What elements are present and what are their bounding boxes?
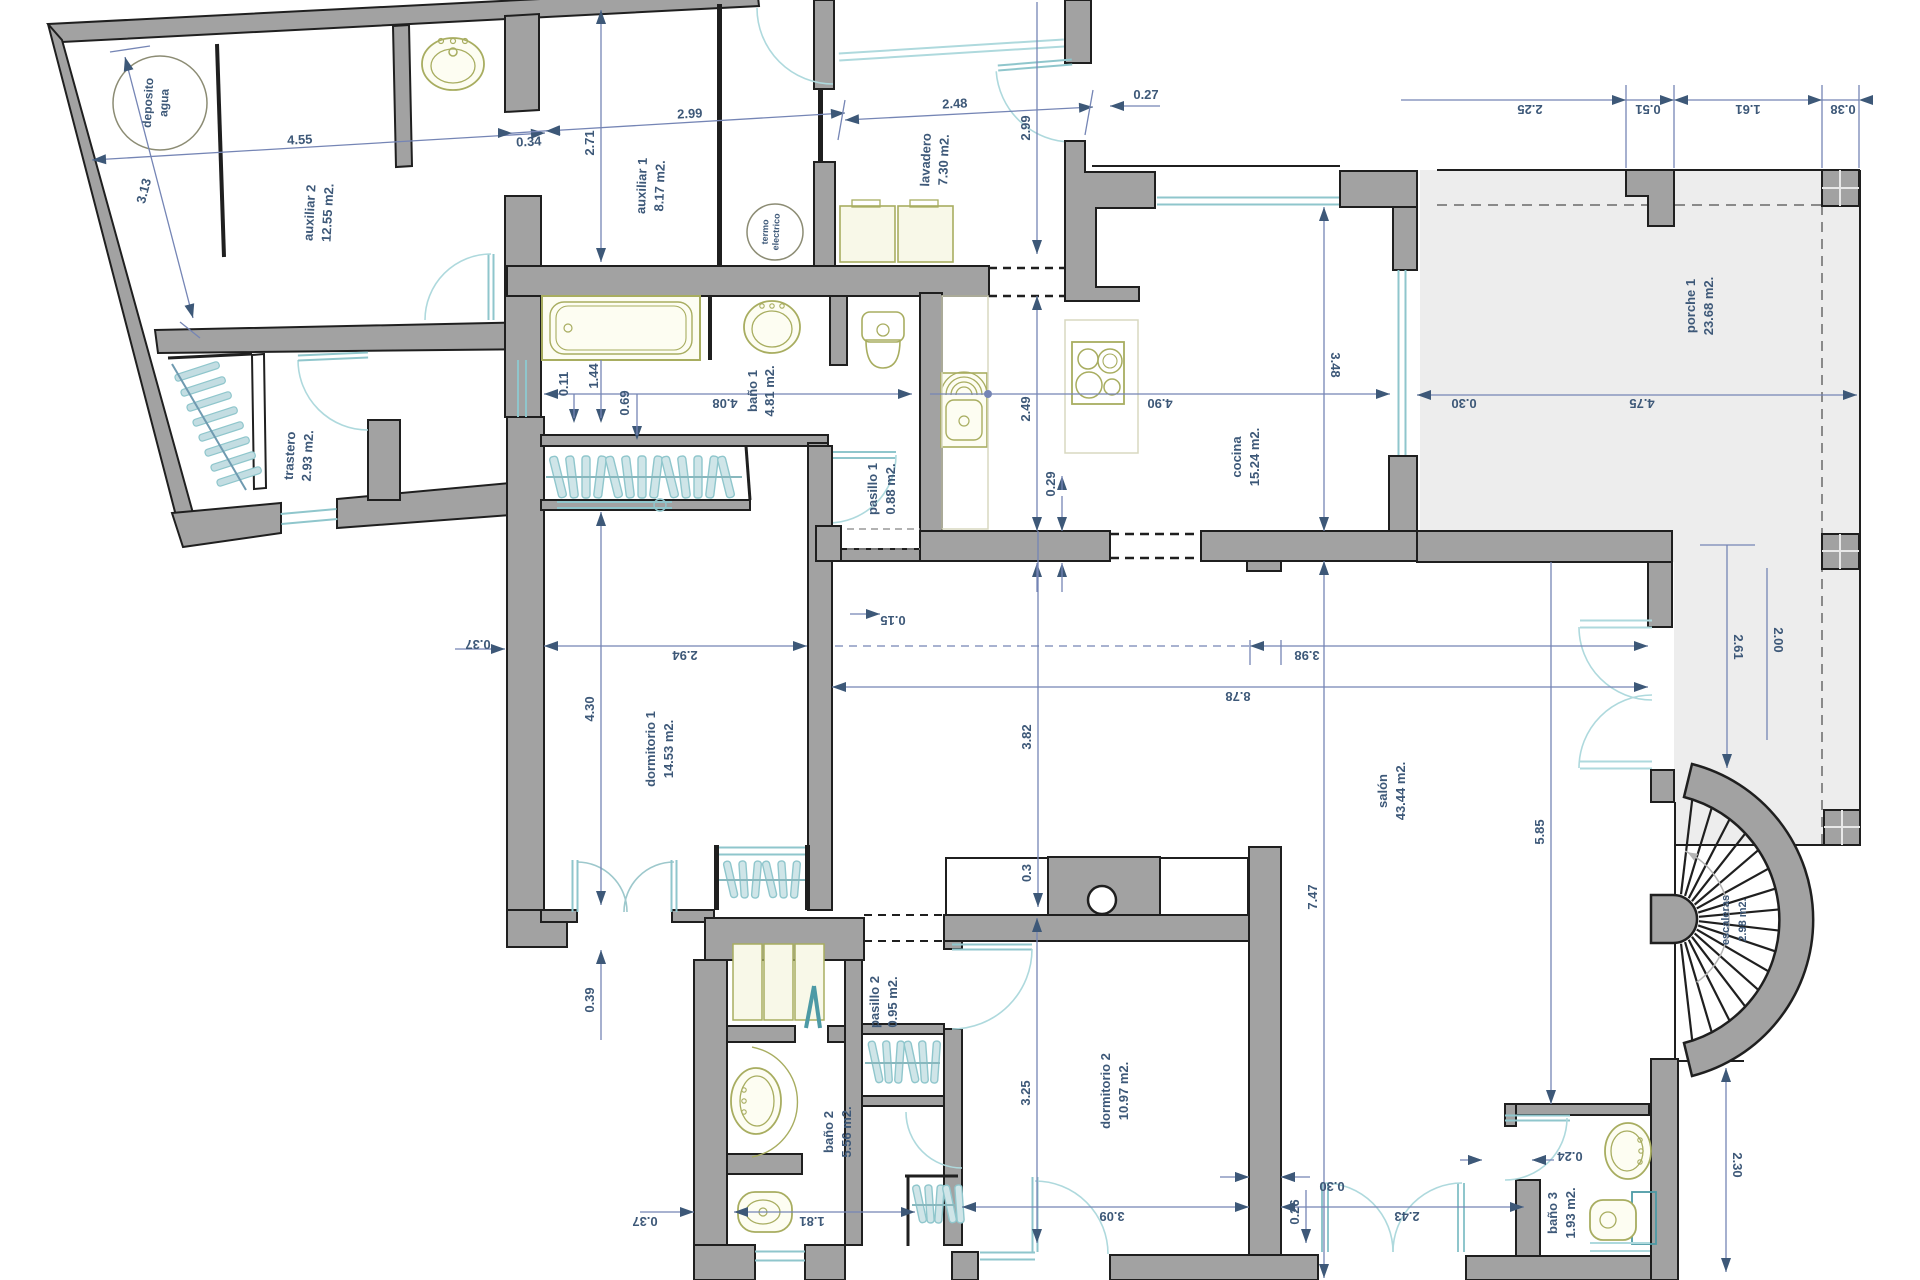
svg-text:4.30: 4.30 — [582, 696, 597, 721]
svg-text:1.93 m2.: 1.93 m2. — [1563, 1187, 1578, 1238]
svg-text:pasillo 1: pasillo 1 — [865, 463, 880, 515]
svg-text:2.99: 2.99 — [1018, 115, 1033, 140]
svg-text:2.99: 2.99 — [677, 105, 703, 121]
svg-text:2.25: 2.25 — [1517, 102, 1542, 117]
svg-text:1.61: 1.61 — [1735, 102, 1760, 117]
svg-text:2.61: 2.61 — [1731, 634, 1746, 659]
svg-text:2.00: 2.00 — [1771, 627, 1786, 652]
svg-text:trastero: trastero — [281, 431, 299, 480]
svg-text:0.15: 0.15 — [880, 613, 905, 628]
svg-text:electrico: electrico — [770, 213, 781, 251]
svg-text:2.49: 2.49 — [1018, 396, 1033, 421]
svg-text:15.24 m2.: 15.24 m2. — [1247, 428, 1262, 487]
svg-text:3.98: 3.98 — [1294, 648, 1319, 663]
svg-text:0.88 m2.: 0.88 m2. — [883, 463, 898, 514]
svg-text:4.81 m2.: 4.81 m2. — [762, 365, 777, 416]
svg-text:43.44 m2.: 43.44 m2. — [1393, 762, 1408, 821]
svg-text:2.98 m2.: 2.98 m2. — [1737, 898, 1749, 941]
svg-text:2.71: 2.71 — [582, 130, 597, 155]
svg-text:4.08: 4.08 — [712, 396, 737, 411]
svg-text:0.39: 0.39 — [582, 987, 597, 1012]
svg-text:dormitorio 1: dormitorio 1 — [643, 711, 658, 787]
svg-text:4.55: 4.55 — [287, 131, 313, 147]
svg-text:12.55 m2.: 12.55 m2. — [318, 183, 336, 242]
svg-text:5.56 m2.: 5.56 m2. — [839, 1106, 854, 1157]
svg-text:lavadero: lavadero — [917, 133, 934, 187]
svg-text:agua: agua — [156, 88, 171, 117]
svg-text:dormitorio 2: dormitorio 2 — [1098, 1053, 1113, 1129]
svg-text:auxiliar 1: auxiliar 1 — [633, 157, 650, 214]
svg-text:0.27: 0.27 — [1133, 87, 1158, 102]
svg-text:baño 3: baño 3 — [1545, 1192, 1560, 1234]
svg-text:7.30 m2.: 7.30 m2. — [935, 134, 952, 186]
svg-text:cocina: cocina — [1229, 436, 1244, 478]
svg-text:0.95 m2.: 0.95 m2. — [885, 976, 900, 1027]
svg-text:8.17 m2.: 8.17 m2. — [651, 160, 668, 212]
svg-text:escaleras: escaleras — [1720, 895, 1732, 945]
svg-text:0.11: 0.11 — [556, 372, 571, 397]
svg-text:baño 2: baño 2 — [821, 1111, 836, 1153]
svg-text:3.82: 3.82 — [1019, 724, 1034, 749]
svg-text:2.94: 2.94 — [672, 648, 698, 663]
svg-text:0.38: 0.38 — [1830, 102, 1855, 117]
svg-text:0.37: 0.37 — [465, 637, 490, 652]
svg-text:0.24: 0.24 — [1557, 1149, 1583, 1164]
svg-text:23.68 m2.: 23.68 m2. — [1701, 277, 1716, 336]
svg-text:2.93 m2.: 2.93 m2. — [299, 430, 317, 482]
svg-text:2.30: 2.30 — [1730, 1152, 1745, 1177]
svg-text:2.48: 2.48 — [942, 95, 968, 111]
svg-text:deposito: deposito — [140, 77, 157, 128]
svg-text:10.97 m2.: 10.97 m2. — [1116, 1062, 1131, 1121]
svg-text:0.34: 0.34 — [516, 133, 543, 149]
svg-text:salón: salón — [1375, 774, 1390, 808]
svg-text:0.51: 0.51 — [1635, 102, 1660, 117]
svg-text:8.78: 8.78 — [1225, 689, 1250, 704]
svg-text:3.48: 3.48 — [1328, 352, 1343, 377]
svg-text:0.29: 0.29 — [1043, 471, 1058, 496]
svg-text:termo: termo — [760, 219, 771, 245]
svg-text:3.09: 3.09 — [1099, 1209, 1124, 1224]
svg-text:0.37: 0.37 — [632, 1214, 657, 1229]
svg-text:baño 1: baño 1 — [745, 370, 760, 412]
svg-text:pasillo 2: pasillo 2 — [867, 976, 882, 1028]
svg-text:auxiliar 2: auxiliar 2 — [301, 184, 319, 241]
svg-text:3.25: 3.25 — [1018, 1080, 1033, 1105]
svg-text:0.69: 0.69 — [617, 390, 632, 415]
svg-text:5.85: 5.85 — [1532, 819, 1547, 844]
svg-text:0.3: 0.3 — [1019, 864, 1034, 882]
svg-text:4.90: 4.90 — [1147, 396, 1172, 411]
svg-text:2.43: 2.43 — [1394, 1209, 1419, 1224]
svg-text:0.30: 0.30 — [1319, 1179, 1344, 1194]
svg-text:0.30: 0.30 — [1451, 396, 1476, 411]
svg-text:porche 1: porche 1 — [1683, 279, 1698, 333]
svg-text:7.47: 7.47 — [1305, 884, 1320, 909]
svg-text:14.53 m2.: 14.53 m2. — [661, 720, 676, 779]
svg-text:1.44: 1.44 — [586, 363, 601, 389]
svg-text:4.75: 4.75 — [1629, 396, 1654, 411]
svg-text:1.81: 1.81 — [799, 1214, 824, 1229]
